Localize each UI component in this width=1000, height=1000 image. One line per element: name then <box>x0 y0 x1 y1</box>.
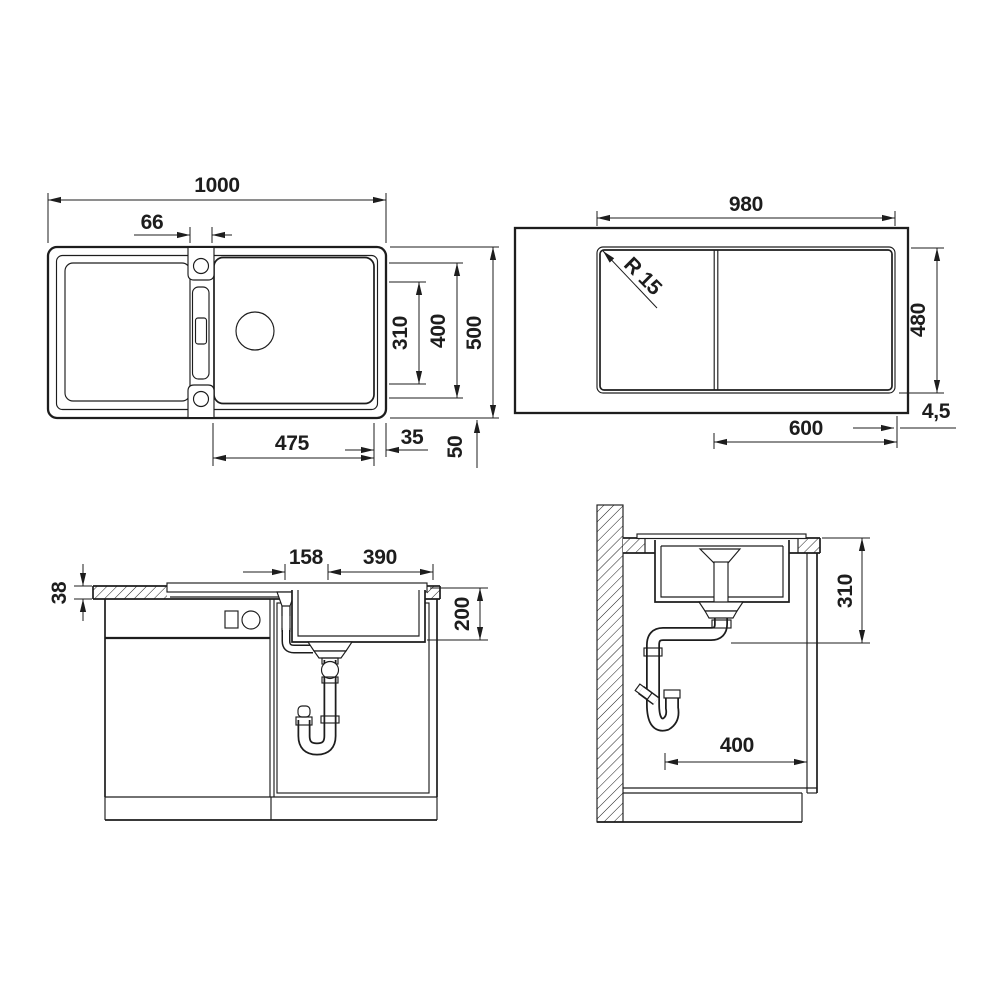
knob-symbol <box>242 611 260 629</box>
dim-edge-detail: 4,5 <box>853 400 956 448</box>
cutout-view: R 15 980 480 4,5 600 <box>515 193 956 449</box>
sink-rim-side <box>637 534 806 539</box>
technical-drawing-sheet: 1000 66 310 400 500 <box>0 0 1000 1000</box>
dim-label-overall-width: 1000 <box>194 174 240 197</box>
dim-cutout-depth: 480 <box>899 248 944 393</box>
dim-label-trap-distance: 400 <box>720 734 754 757</box>
dim-label-bowl-inner-depth: 310 <box>389 316 412 350</box>
side-section-view: 310 400 <box>597 505 870 822</box>
dim-label-bowl-width: 475 <box>275 432 310 455</box>
dim-overall-depth: 500 <box>463 247 493 418</box>
front-section-view: 38 158 390 200 <box>48 546 488 820</box>
siphon-assembly <box>296 642 352 749</box>
dim-label-edge-detail: 4,5 <box>922 400 951 423</box>
dim-tap-ledge: 66 <box>134 211 232 243</box>
drain-body <box>308 642 352 651</box>
dim-label-bowl-outer-depth: 400 <box>427 314 450 348</box>
dim-label-cutout-width: 980 <box>729 193 763 216</box>
dim-label-bowl-depth: 200 <box>451 597 474 631</box>
dim-label-tap-ledge: 66 <box>141 211 164 234</box>
drain-locknut <box>699 602 743 611</box>
dim-label-edge-gap: 35 <box>401 426 424 449</box>
dim-label-overflow-to-drain: 158 <box>289 546 324 569</box>
wall-section <box>597 505 623 822</box>
dim-rear-gap: 50 <box>444 420 477 468</box>
center-rail-slot <box>196 318 207 344</box>
dim-drain-position: 158 390 <box>243 546 433 580</box>
top-view: 1000 66 310 400 500 <box>48 174 499 468</box>
tap-hole-bottom <box>194 392 209 407</box>
drawing-svg: 1000 66 310 400 500 <box>0 0 1000 1000</box>
dim-bowl-outer-depth: 400 <box>427 263 457 398</box>
dim-base-cabinet: 600 <box>714 417 897 449</box>
dim-bowl-width: 475 <box>213 432 374 458</box>
dim-label-drain-height: 310 <box>834 574 857 608</box>
worktop-hatch-left <box>93 586 167 599</box>
ball-joint <box>322 662 339 679</box>
dim-label-cutout-depth: 480 <box>907 303 930 337</box>
dim-label-rear-gap: 50 <box>444 436 467 459</box>
dim-label-overall-depth: 500 <box>463 316 486 350</box>
worktop-panel <box>515 228 908 413</box>
dim-cutout-width: 980 <box>597 193 895 226</box>
dim-label-worktop-thickness: 38 <box>48 581 71 604</box>
tap-hole-top <box>194 259 209 274</box>
pipe-collar-side-3 <box>664 690 680 698</box>
drainer-recess <box>65 263 190 401</box>
dim-overall-width: 1000 <box>48 174 386 243</box>
dim-bowl-inner-depth: 310 <box>389 282 419 384</box>
dim-worktop-thickness: 38 <box>48 564 92 621</box>
dim-trap-distance: 400 <box>665 734 807 770</box>
drain-hole <box>236 312 274 350</box>
bowl-section <box>292 590 425 642</box>
dim-corner-radius: R 15 <box>603 251 666 308</box>
cleanout-plug <box>298 706 310 717</box>
dim-label-base-cabinet: 600 <box>789 417 823 440</box>
dim-label-drain-to-edge: 390 <box>363 546 397 569</box>
switch-symbol <box>225 611 238 628</box>
